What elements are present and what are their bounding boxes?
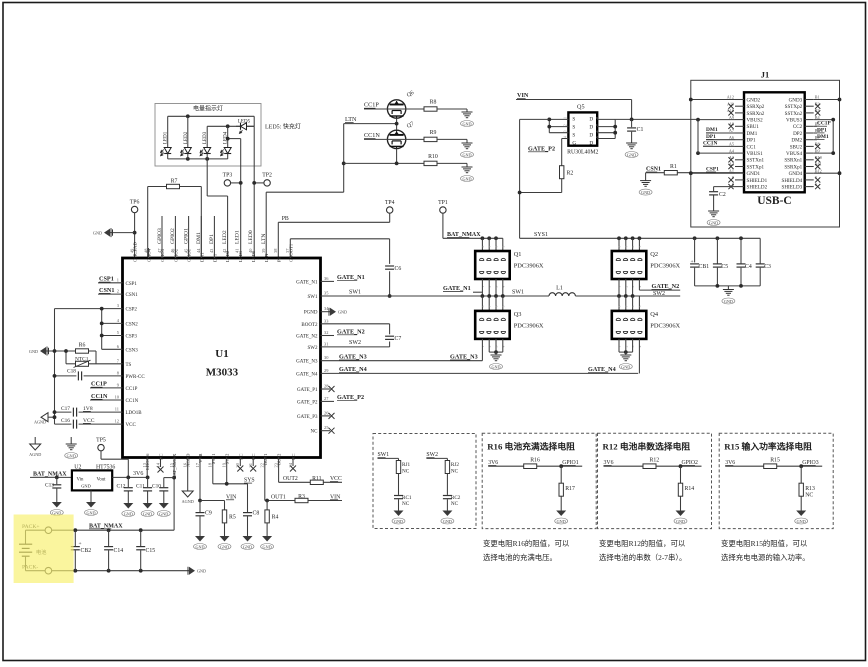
svg-text:VBUS2: VBUS2	[747, 118, 764, 124]
svg-text:3V6: 3V6	[725, 460, 735, 466]
svg-text:C4: C4	[745, 264, 752, 270]
svg-text:5: 5	[596, 136, 600, 138]
svg-text:8: 8	[481, 246, 485, 248]
svg-text:SW2: SW2	[308, 346, 319, 351]
svg-text:1: 1	[481, 286, 485, 288]
svg-text:GND3: GND3	[789, 97, 803, 103]
svg-text:GATE_N1: GATE_N1	[337, 274, 365, 281]
svg-text:31: 31	[324, 341, 328, 346]
svg-text:4: 4	[638, 345, 642, 347]
svg-text:CB2: CB2	[81, 548, 92, 554]
svg-text:GND: GND	[724, 299, 733, 304]
svg-text:Q3: Q3	[514, 311, 522, 318]
svg-text:GND: GND	[220, 544, 229, 549]
svg-text:5: 5	[501, 305, 505, 307]
svg-text:GATE_N2: GATE_N2	[296, 335, 318, 340]
svg-text:NC: NC	[451, 501, 459, 507]
svg-text:选择电池的充满电压。: 选择电池的充满电压。	[483, 553, 557, 562]
svg-text:4: 4	[501, 345, 505, 347]
svg-text:S: S	[572, 124, 575, 130]
svg-text:LED2: LED2	[222, 230, 228, 244]
svg-text:GND: GND	[93, 231, 102, 236]
svg-text:DP1: DP1	[817, 127, 827, 133]
svg-text:AGND: AGND	[182, 499, 194, 504]
svg-text:GATE_N4: GATE_N4	[339, 366, 367, 373]
svg-text:LED2: LED2	[184, 131, 189, 144]
svg-text:SW1: SW1	[378, 452, 390, 458]
svg-text:LED1: LED1	[235, 230, 241, 244]
svg-text:DP1: DP1	[747, 138, 757, 144]
svg-text:NC: NC	[402, 468, 410, 474]
svg-text:C10: C10	[152, 483, 161, 489]
svg-text:VBUS1: VBUS1	[747, 151, 764, 157]
svg-text:CC1P: CC1P	[817, 121, 831, 127]
svg-text:GND: GND	[627, 152, 636, 157]
svg-text:SHIELD3: SHIELD3	[782, 185, 803, 191]
svg-text:NC: NC	[311, 430, 319, 435]
svg-text:GND: GND	[143, 511, 152, 516]
svg-text:SW1: SW1	[349, 289, 361, 295]
svg-text:DM1: DM1	[747, 131, 758, 137]
svg-text:HT7536: HT7536	[96, 464, 115, 470]
svg-text:LED0: LED0	[248, 230, 254, 244]
svg-text:32: 32	[324, 330, 328, 335]
svg-text:DM2: DM2	[791, 138, 802, 144]
svg-text:G: G	[572, 140, 576, 146]
svg-text:3: 3	[631, 286, 635, 288]
svg-text:S: S	[572, 116, 575, 122]
svg-text:1: 1	[117, 277, 119, 282]
svg-text:DM1: DM1	[817, 134, 829, 140]
svg-text:C7: C7	[395, 336, 402, 342]
svg-text:GND: GND	[197, 569, 206, 574]
svg-text:VBUS3: VBUS3	[786, 118, 803, 124]
svg-text:4: 4	[563, 136, 567, 138]
svg-text:SW1: SW1	[308, 295, 319, 300]
svg-text:R17: R17	[565, 486, 575, 492]
svg-text:BAT_NMAX: BAT_NMAX	[447, 232, 481, 238]
svg-text:GATE_N3: GATE_N3	[450, 354, 478, 361]
svg-text:SSTXn1: SSTXn1	[747, 158, 765, 164]
svg-text:R16 电池充满选择电阻: R16 电池充满选择电阻	[487, 441, 575, 452]
svg-text:D: D	[589, 116, 593, 122]
svg-text:PDC3906X: PDC3906X	[514, 322, 544, 329]
svg-text:D: D	[589, 124, 593, 130]
svg-text:SW2: SW2	[426, 452, 438, 458]
svg-text:B1: B1	[815, 95, 820, 100]
svg-text:GATE_N1: GATE_N1	[443, 285, 471, 292]
svg-text:SSRXp1: SSRXp1	[784, 164, 802, 170]
svg-text:C17: C17	[61, 406, 70, 412]
svg-text:GND: GND	[557, 519, 566, 524]
svg-text:PWR-CC: PWR-CC	[126, 375, 146, 380]
svg-text:6: 6	[631, 305, 635, 307]
svg-text:CSN1: CSN1	[646, 167, 661, 173]
svg-text:BAT_NMAX: BAT_NMAX	[89, 523, 123, 529]
svg-text:SHIELD2: SHIELD2	[747, 185, 768, 191]
svg-text:Vout: Vout	[97, 477, 107, 482]
svg-text:C3: C3	[764, 264, 771, 270]
svg-text:VIN: VIN	[330, 494, 341, 500]
svg-text:C13: C13	[45, 483, 54, 489]
svg-text:CC1P: CC1P	[126, 387, 138, 392]
svg-text:SYS1: SYS1	[534, 232, 548, 238]
svg-text:LTN: LTN	[261, 234, 267, 244]
svg-text:GPIO3: GPIO3	[802, 460, 819, 466]
svg-text:GND: GND	[797, 519, 806, 524]
svg-text:CC1P: CC1P	[91, 381, 107, 388]
svg-text:GATE_N4: GATE_N4	[588, 366, 616, 373]
svg-text:CC1N: CC1N	[703, 141, 717, 147]
svg-text:CB1: CB1	[699, 264, 710, 270]
svg-text:CSP1: CSP1	[706, 167, 719, 173]
svg-text:4: 4	[501, 286, 505, 288]
svg-text:Q1: Q1	[514, 251, 522, 258]
svg-text:C14: C14	[114, 548, 124, 554]
svg-text:CSN1: CSN1	[99, 287, 114, 294]
svg-text:3V6: 3V6	[133, 471, 143, 477]
svg-text:OUT1: OUT1	[271, 494, 286, 500]
svg-text:11: 11	[115, 407, 119, 412]
svg-text:GND: GND	[621, 364, 630, 369]
svg-text:2: 2	[488, 345, 492, 347]
svg-text:USB-C: USB-C	[757, 195, 792, 207]
svg-text:12: 12	[115, 419, 119, 424]
svg-text:R15 输入功率选择电阻: R15 输入功率选择电阻	[724, 441, 812, 452]
svg-text:8: 8	[481, 305, 485, 307]
svg-text:DM1: DM1	[706, 127, 718, 133]
svg-text:7: 7	[624, 246, 628, 248]
svg-text:LDO1B: LDO1B	[126, 411, 143, 416]
svg-text:CSP1: CSP1	[99, 276, 114, 283]
svg-text:RJ2: RJ2	[451, 462, 459, 468]
svg-text:GND: GND	[443, 519, 452, 524]
svg-text:8: 8	[618, 246, 622, 248]
svg-text:CSP2: CSP2	[126, 308, 138, 313]
svg-text:CC1N: CC1N	[126, 399, 139, 404]
svg-text:GND: GND	[263, 544, 272, 549]
svg-text:R16: R16	[530, 458, 540, 464]
svg-text:SSTXp1: SSTXp1	[747, 164, 765, 170]
svg-text:SSTXp2: SSTXp2	[785, 104, 803, 110]
svg-text:GND: GND	[243, 544, 252, 549]
svg-text:8: 8	[618, 305, 622, 307]
svg-text:SSRXn1: SSRXn1	[784, 158, 802, 164]
svg-text:GND: GND	[159, 511, 168, 516]
svg-text:VCC: VCC	[126, 423, 137, 428]
svg-text:SYS: SYS	[244, 478, 255, 484]
svg-text:GND: GND	[641, 190, 650, 195]
svg-text:电量指示灯: 电量指示灯	[193, 105, 223, 113]
svg-text:GATE_P1: GATE_P1	[297, 388, 318, 393]
svg-text:R8: R8	[430, 100, 437, 106]
svg-text:7: 7	[488, 305, 492, 307]
svg-text:GATE_N3: GATE_N3	[296, 360, 318, 365]
svg-text:R12 电池串数选择电阻: R12 电池串数选择电阻	[603, 441, 691, 452]
svg-text:TP6: TP6	[130, 200, 140, 206]
svg-text:CC1N: CC1N	[364, 132, 380, 139]
svg-text:PDC3906X: PDC3906X	[514, 263, 544, 270]
svg-text:2: 2	[624, 345, 628, 347]
svg-text:LED3: LED3	[203, 131, 208, 144]
svg-text:SSRXn2: SSRXn2	[747, 111, 765, 117]
svg-text:C1: C1	[637, 127, 644, 133]
svg-text:3V6: 3V6	[488, 460, 498, 466]
svg-text:3: 3	[495, 345, 499, 347]
svg-text:OUT2: OUT2	[283, 476, 298, 482]
svg-text:U1: U1	[215, 348, 228, 360]
svg-text:R6: R6	[79, 343, 86, 349]
svg-text:R1: R1	[670, 164, 677, 170]
svg-text:C11: C11	[136, 483, 145, 489]
svg-text:RC2: RC2	[451, 495, 461, 501]
svg-text:RU30L40M2: RU30L40M2	[567, 150, 598, 156]
svg-text:1: 1	[481, 345, 485, 347]
svg-text:GPIO2: GPIO2	[682, 460, 699, 466]
svg-text:NC: NC	[402, 501, 410, 507]
svg-text:LTN: LTN	[264, 253, 269, 262]
svg-text:BAT_NMAX: BAT_NMAX	[33, 472, 67, 478]
svg-text:GATE_N2: GATE_N2	[337, 328, 365, 335]
svg-text:41: 41	[235, 249, 240, 253]
svg-text:DP1: DP1	[706, 134, 716, 140]
svg-text:7: 7	[624, 305, 628, 307]
svg-text:C15: C15	[146, 548, 156, 554]
svg-text:VBUS4: VBUS4	[786, 151, 803, 157]
svg-text:4: 4	[638, 286, 642, 288]
svg-text:CSN1: CSN1	[126, 293, 139, 298]
svg-text:22: 22	[260, 463, 265, 467]
svg-text:2: 2	[488, 286, 492, 288]
svg-text:+: +	[691, 259, 694, 265]
svg-text:R2: R2	[567, 171, 574, 177]
svg-text:R12: R12	[650, 458, 660, 464]
svg-text:GND4: GND4	[789, 171, 803, 177]
svg-text:GATE_P2: GATE_P2	[528, 145, 555, 152]
svg-text:GND: GND	[86, 510, 95, 515]
svg-text:NC: NC	[805, 493, 813, 499]
svg-text:2: 2	[563, 124, 567, 126]
svg-text:SW2: SW2	[349, 340, 361, 346]
svg-text:GND: GND	[462, 176, 471, 181]
svg-text:LED5: 快充灯: LED5: 快充灯	[265, 123, 301, 131]
svg-text:R5: R5	[229, 515, 236, 521]
svg-text:C9: C9	[205, 511, 212, 517]
svg-text:选择充电电源的输入功率。: 选择充电电源的输入功率。	[721, 553, 810, 562]
svg-text:C6: C6	[395, 266, 402, 272]
svg-text:选择电池的串数（2-7串）。: 选择电池的串数（2-7串）。	[599, 553, 686, 562]
svg-text:M3033: M3033	[206, 367, 239, 379]
svg-text:C18: C18	[67, 368, 76, 374]
svg-text:GND: GND	[338, 310, 347, 315]
svg-text:C2: C2	[719, 192, 726, 198]
svg-text:3: 3	[495, 286, 499, 288]
svg-text:GND: GND	[709, 220, 718, 225]
svg-text:R9: R9	[430, 130, 437, 136]
svg-text:3V6: 3V6	[604, 460, 614, 466]
svg-text:GND2: GND2	[747, 97, 761, 103]
svg-text:GND: GND	[462, 121, 471, 126]
svg-text:PB: PB	[282, 216, 289, 222]
svg-text:AGND: AGND	[34, 420, 46, 425]
svg-text:R13: R13	[805, 486, 815, 492]
svg-text:AGND: AGND	[29, 452, 41, 457]
svg-text:PGND: PGND	[304, 311, 318, 316]
svg-text:GND: GND	[124, 511, 133, 516]
svg-text:SW1: SW1	[512, 290, 524, 296]
svg-text:Vin: Vin	[77, 477, 85, 482]
svg-text:GND: GND	[676, 519, 685, 524]
svg-text:NC: NC	[451, 468, 459, 474]
svg-text:CC1P: CC1P	[364, 102, 379, 109]
svg-text:GND1: GND1	[747, 171, 761, 177]
svg-text:7: 7	[488, 246, 492, 248]
svg-text:CC2: CC2	[793, 124, 803, 130]
svg-text:6: 6	[631, 246, 635, 248]
svg-text:CC1: CC1	[747, 144, 757, 150]
svg-text:变更电阻R12的阻值，可以: 变更电阻R12的阻值，可以	[599, 539, 686, 548]
svg-text:VCC: VCC	[83, 418, 95, 424]
svg-text:J1: J1	[761, 70, 770, 80]
svg-text:A5: A5	[729, 142, 734, 147]
svg-text:8: 8	[596, 117, 600, 119]
svg-text:Q2: Q2	[650, 251, 658, 258]
svg-text:R4: R4	[272, 515, 279, 521]
svg-text:+: +	[79, 541, 82, 547]
svg-text:R10: R10	[428, 154, 438, 160]
svg-text:Q5: Q5	[577, 104, 585, 111]
svg-text:7: 7	[596, 124, 600, 126]
svg-text:C12: C12	[117, 483, 126, 489]
svg-text:42: 42	[222, 249, 227, 253]
svg-text:GPIO1: GPIO1	[562, 460, 579, 466]
svg-text:LTN: LTN	[345, 116, 357, 123]
svg-text:R15: R15	[770, 458, 780, 464]
svg-text:R7: R7	[171, 178, 178, 184]
svg-text:D: D	[589, 132, 593, 138]
svg-text:GND: GND	[394, 519, 403, 524]
svg-text:RJ1: RJ1	[402, 462, 410, 468]
svg-text:1: 1	[618, 286, 622, 288]
svg-text:GND: GND	[81, 483, 91, 488]
svg-text:S: S	[572, 132, 575, 138]
svg-text:C8: C8	[253, 511, 260, 517]
svg-text:BOOT2: BOOT2	[301, 323, 318, 328]
svg-text:C16: C16	[61, 418, 70, 424]
svg-text:GND: GND	[29, 349, 38, 354]
svg-text:变更电阻R16的阻值，可以: 变更电阻R16的阻值，可以	[483, 539, 570, 548]
svg-text:6: 6	[495, 305, 499, 307]
svg-text:SW2: SW2	[653, 291, 665, 297]
svg-text:GATE_N4: GATE_N4	[296, 372, 318, 377]
svg-text:1V8: 1V8	[83, 406, 93, 412]
svg-text:5: 5	[638, 246, 642, 248]
svg-text:VCC: VCC	[330, 476, 342, 482]
svg-text:SBU2: SBU2	[790, 144, 803, 150]
svg-text:VIN: VIN	[226, 494, 237, 500]
svg-text:2: 2	[624, 286, 628, 288]
svg-text:GATE_P2: GATE_P2	[297, 400, 318, 405]
svg-text:GATE_P3: GATE_P3	[297, 415, 318, 420]
svg-text:PB: PB	[276, 256, 281, 262]
svg-text:GATE_P2: GATE_P2	[337, 394, 364, 401]
svg-text:5: 5	[638, 305, 642, 307]
svg-text:D: D	[589, 140, 593, 146]
svg-text:TP3: TP3	[223, 173, 233, 179]
svg-text:SHIELD1: SHIELD1	[747, 178, 768, 184]
svg-text:CSN3: CSN3	[126, 348, 139, 353]
svg-text:CSN2: CSN2	[126, 322, 139, 327]
svg-text:U2: U2	[74, 464, 81, 470]
svg-text:C5: C5	[721, 264, 728, 270]
svg-text:6: 6	[495, 246, 499, 248]
svg-text:TS: TS	[126, 363, 132, 368]
svg-text:5: 5	[501, 246, 505, 248]
svg-text:RC1: RC1	[402, 495, 412, 501]
svg-text:GND: GND	[195, 544, 204, 549]
svg-text:VIN: VIN	[517, 92, 529, 99]
svg-text:6: 6	[596, 130, 600, 132]
svg-text:SSRXp2: SSRXp2	[747, 104, 765, 110]
svg-text:DP2: DP2	[793, 131, 803, 137]
svg-text:L1: L1	[556, 285, 563, 291]
svg-text:1: 1	[563, 117, 567, 119]
svg-text:3: 3	[563, 130, 567, 132]
svg-text:Q4: Q4	[650, 311, 659, 318]
svg-text:GATE_N1: GATE_N1	[296, 280, 318, 285]
svg-text:GND: GND	[67, 453, 76, 458]
svg-text:A4: A4	[729, 148, 735, 153]
svg-text:PDC3906X: PDC3906X	[650, 322, 680, 329]
svg-text:CSP3: CSP3	[126, 335, 138, 340]
svg-text:A6: A6	[729, 135, 734, 140]
svg-text:SHIELD4: SHIELD4	[782, 178, 803, 184]
svg-text:GATE_N2: GATE_N2	[652, 283, 680, 290]
svg-text:TP1: TP1	[438, 200, 448, 206]
svg-text:3: 3	[631, 345, 635, 347]
svg-text:R14: R14	[685, 486, 695, 492]
svg-text:TP5: TP5	[96, 438, 106, 444]
svg-text:GND: GND	[462, 152, 471, 157]
svg-text:LED1: LED1	[164, 131, 169, 144]
svg-text:TP4: TP4	[385, 200, 395, 206]
svg-text:A12: A12	[727, 95, 734, 100]
svg-text:SBU1: SBU1	[747, 124, 760, 130]
svg-text:TP2: TP2	[262, 173, 272, 179]
svg-text:CSP1: CSP1	[126, 282, 138, 287]
svg-text:GATE_N3: GATE_N3	[339, 354, 367, 361]
svg-text:变更电阻R15的阻值，可以: 变更电阻R15的阻值，可以	[721, 539, 808, 548]
svg-text:SSTXn2: SSTXn2	[785, 111, 803, 117]
svg-text:1: 1	[618, 345, 622, 347]
svg-text:GND: GND	[491, 364, 500, 369]
svg-text:PDC3906X: PDC3906X	[650, 263, 680, 270]
svg-text:2: 2	[117, 289, 119, 294]
svg-text:CC1N: CC1N	[91, 393, 108, 400]
